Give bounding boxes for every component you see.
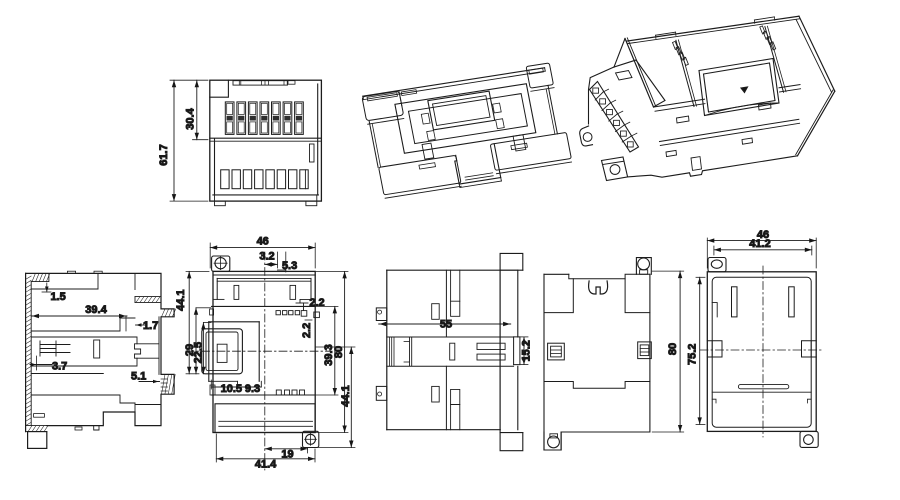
svg-text:80: 80: [333, 346, 345, 358]
svg-text:1.7: 1.7: [143, 320, 158, 332]
svg-text:1.5: 1.5: [51, 291, 66, 303]
svg-text:9.3: 9.3: [245, 383, 260, 395]
svg-text:30.4: 30.4: [185, 107, 197, 129]
svg-text:46: 46: [257, 236, 269, 248]
svg-text:39.4: 39.4: [85, 304, 107, 316]
svg-text:22.5: 22.5: [193, 342, 205, 363]
svg-text:2.2: 2.2: [309, 297, 324, 309]
svg-text:5.3: 5.3: [282, 260, 297, 272]
svg-text:2.2: 2.2: [301, 323, 313, 338]
svg-text:41.2: 41.2: [749, 238, 770, 250]
svg-text:75.2: 75.2: [687, 344, 699, 365]
svg-text:55: 55: [440, 319, 452, 331]
svg-text:15.2: 15.2: [521, 340, 533, 361]
svg-text:10.5: 10.5: [221, 383, 242, 395]
svg-text:5.1: 5.1: [131, 371, 146, 383]
svg-text:44.1: 44.1: [340, 385, 352, 406]
svg-text:3.2: 3.2: [259, 250, 274, 262]
svg-text:41.4: 41.4: [255, 459, 277, 471]
svg-text:3.7: 3.7: [52, 361, 67, 373]
svg-text:61.7: 61.7: [158, 144, 170, 165]
svg-text:80: 80: [667, 343, 679, 355]
svg-text:44.1: 44.1: [175, 289, 187, 310]
